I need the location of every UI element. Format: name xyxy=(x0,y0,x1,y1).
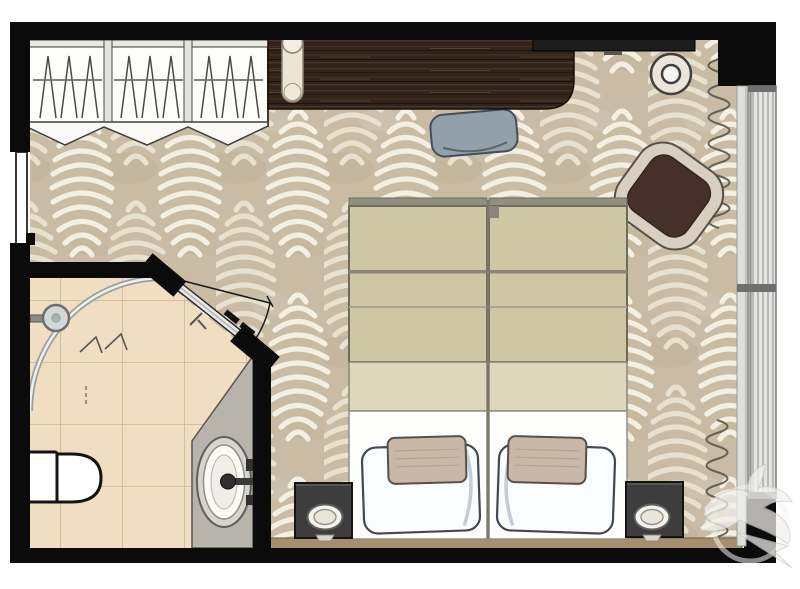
wardrobe xyxy=(25,40,268,145)
wall-corner-top-right xyxy=(718,22,776,86)
wall-bottom xyxy=(10,548,776,563)
accent-cushion-right xyxy=(507,436,586,484)
wardrobe-divider xyxy=(104,40,112,126)
desk-chair xyxy=(429,108,518,157)
tv-bracket xyxy=(604,51,622,55)
toilet xyxy=(27,452,101,502)
floor-plan-page xyxy=(0,0,800,589)
curtain-track xyxy=(737,86,746,546)
wall-top xyxy=(10,22,748,40)
floor-plan-canvas xyxy=(0,0,800,589)
accent-cushion-left xyxy=(387,436,466,484)
wall-bathroom-top xyxy=(10,262,163,278)
entry-door-stop xyxy=(26,233,35,245)
bolster-cushion xyxy=(282,33,303,102)
side-table-round xyxy=(651,54,691,94)
wall-left-upper xyxy=(10,22,30,152)
wardrobe-top-rail xyxy=(25,40,268,47)
entry-door xyxy=(16,152,27,244)
duvet-corner-notch xyxy=(489,206,499,218)
entry-jamb-top xyxy=(12,142,30,152)
wardrobe-divider xyxy=(184,40,192,126)
wall-left-lower xyxy=(10,243,30,548)
window-transom xyxy=(737,284,776,292)
lamp-base xyxy=(643,535,661,541)
window-frame-top xyxy=(748,86,776,92)
wall-bathroom-right xyxy=(253,350,271,548)
entry-jamb-bottom xyxy=(12,244,30,254)
desk-console xyxy=(268,31,574,109)
lamp-base xyxy=(316,535,334,541)
wardrobe-bifold-doors xyxy=(25,122,268,145)
nightstand-left xyxy=(295,483,352,541)
nightstand-right xyxy=(626,482,683,541)
